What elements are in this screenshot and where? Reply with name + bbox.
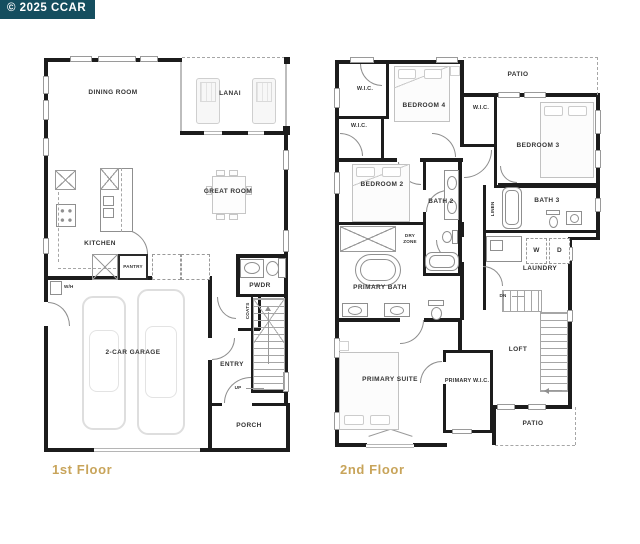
wall-segment	[44, 280, 48, 302]
wall-segment	[423, 273, 462, 276]
sink-basin	[447, 176, 457, 190]
slider-door	[248, 131, 264, 135]
pillow	[424, 69, 442, 79]
toilet-bowl	[442, 231, 452, 243]
room-label-bath2: BATH 2	[420, 198, 462, 206]
wall-segment	[222, 131, 248, 135]
wall-segment	[460, 262, 464, 320]
room-label-dining: DINING ROOM	[83, 89, 143, 97]
door-arc	[360, 64, 382, 86]
pillow	[370, 415, 390, 425]
window-marker	[43, 76, 49, 94]
wall-segment	[208, 276, 212, 338]
sink-basin	[244, 262, 260, 274]
window-marker	[497, 404, 515, 410]
room-label-garage: 2-CAR GARAGE	[92, 349, 174, 357]
wall-segment	[180, 131, 204, 135]
wall-segment	[460, 144, 497, 147]
wall-segment	[335, 443, 367, 447]
patio-dashed-line	[597, 57, 598, 95]
chair	[216, 214, 225, 220]
room-label-kitchen: KITCHEN	[69, 240, 131, 248]
room-label-pwdr: PWDR	[234, 282, 286, 290]
window-marker	[43, 100, 49, 120]
door-arc	[500, 166, 517, 183]
room-label-wh: W/H	[64, 284, 82, 290]
wall-segment	[443, 350, 446, 362]
wall-segment	[424, 318, 462, 322]
bathtub-inner	[360, 259, 396, 281]
up-arrow-icon	[265, 306, 271, 311]
stair-cross-mark	[253, 298, 285, 344]
room-label-lanai: LANAI	[205, 90, 255, 98]
window-marker	[283, 230, 289, 252]
pillow	[398, 69, 416, 79]
door-arc	[483, 266, 503, 286]
wall-segment	[413, 443, 447, 447]
room-label-bath3: BATH 3	[526, 197, 568, 205]
wall-segment	[284, 57, 290, 64]
window-marker	[98, 56, 136, 62]
room-label-bedroom3: BEDROOM 3	[502, 142, 574, 150]
copyright-badge: © 2025 CCAR	[0, 0, 95, 19]
staircase-down	[540, 312, 568, 392]
bathtub-inner	[505, 190, 519, 225]
wall-segment	[337, 222, 425, 225]
room-label-laundry: LAUNDRY	[504, 265, 576, 273]
room-label-wic2: W.I.C.	[341, 123, 377, 130]
door-arc	[340, 133, 363, 156]
label-dryer: D	[550, 247, 569, 255]
room-label-primary-wic: PRIMARY W.I.C.	[441, 378, 493, 385]
stair-direction-line	[246, 388, 264, 389]
counter-dashed-line	[58, 192, 59, 262]
toilet-tank	[452, 230, 458, 244]
room-label-primary-bath: PRIMARY BATH	[350, 284, 410, 292]
nightstand	[339, 341, 349, 351]
wall-segment	[236, 294, 288, 297]
down-arrow-icon	[544, 388, 549, 394]
floorplan-canvas: © 2025 CCAR	[0, 0, 640, 544]
door-arc	[217, 297, 236, 319]
wall-segment	[208, 403, 222, 406]
door-arc	[400, 320, 424, 344]
window-marker	[528, 404, 546, 410]
pillow	[356, 167, 375, 177]
roof-dashed-line	[182, 57, 290, 58]
toilet-tank	[428, 300, 444, 306]
island-xbox	[100, 168, 119, 190]
wall-segment	[44, 326, 48, 452]
wall-segment	[44, 448, 94, 452]
storage-xbox	[181, 254, 210, 280]
laundry-sink	[490, 240, 503, 251]
wall-segment	[492, 407, 496, 445]
wall-segment	[264, 131, 290, 135]
toilet-bowl	[549, 216, 558, 228]
room-label-primary-suite: PRIMARY SUITE	[359, 376, 421, 384]
window-marker	[43, 238, 49, 254]
sink-basin	[348, 306, 362, 315]
garage-door	[94, 448, 200, 452]
wall-segment	[498, 183, 600, 186]
wall-segment	[337, 158, 397, 162]
patio-dashed-line	[575, 407, 576, 445]
nightstand	[450, 66, 460, 76]
toilet-bowl	[266, 261, 279, 276]
sink-basin	[390, 306, 404, 315]
bathtub-inner	[429, 255, 455, 268]
slider-door	[180, 62, 182, 131]
room-label-entry: ENTRY	[206, 361, 258, 369]
sink-basin	[570, 214, 579, 223]
window-marker	[498, 92, 520, 98]
wall-segment	[443, 384, 446, 432]
stair-label-dn: DN	[496, 293, 510, 299]
toilet-tank	[546, 210, 560, 215]
room-label-patio-top: PATIO	[492, 71, 544, 79]
pillow	[544, 106, 563, 116]
pillow	[382, 167, 401, 177]
window-marker	[524, 92, 546, 98]
toilet-tank	[278, 258, 286, 278]
chair	[229, 170, 238, 176]
wall-segment	[381, 118, 384, 161]
window-marker	[140, 56, 158, 62]
door-arc	[212, 338, 235, 360]
lounge-chair-back	[256, 82, 272, 102]
room-label-linen: LINEN	[490, 193, 496, 225]
stair-label-up: UP	[231, 385, 245, 391]
door-arc	[464, 150, 492, 178]
room-label-great-room: GREAT ROOM	[202, 188, 254, 196]
window-marker	[595, 150, 601, 168]
window-marker	[595, 110, 601, 134]
door-arc	[432, 133, 456, 157]
wall-segment	[483, 230, 598, 233]
door-arc	[420, 361, 442, 383]
wall-segment	[286, 403, 290, 452]
french-door-threshold	[366, 444, 414, 448]
water-heater	[50, 281, 62, 295]
storage-xbox	[152, 254, 181, 280]
floor2-title: 2nd Floor	[340, 462, 405, 478]
wall-segment	[460, 222, 464, 237]
window-marker	[595, 198, 601, 212]
island-sink	[103, 208, 114, 218]
pillow	[568, 106, 587, 116]
wall-segment	[208, 403, 212, 452]
pillow	[344, 415, 364, 425]
room-label-porch: PORCH	[218, 422, 280, 430]
door-arc	[48, 302, 70, 326]
room-label-wic3: W.I.C.	[463, 105, 499, 112]
window-marker	[334, 88, 340, 108]
wall-segment	[337, 318, 400, 322]
room-label-wic1: W.I.C.	[347, 86, 383, 93]
wall-segment	[208, 448, 290, 452]
toilet-bowl	[431, 307, 442, 320]
counter-dashed-line	[121, 168, 122, 232]
wall-segment	[252, 403, 288, 406]
wall-segment	[420, 158, 463, 162]
wall-segment	[570, 237, 598, 240]
shower	[340, 226, 396, 252]
room-label-pantry: PANTRY	[119, 264, 147, 270]
room-label-bedroom2: BEDROOM 2	[346, 181, 418, 189]
room-label-patio-bottom: PATIO	[507, 420, 559, 428]
lanai-window-wall	[285, 64, 287, 126]
chair	[216, 170, 225, 176]
patio-dashed-line	[495, 445, 575, 446]
window-marker	[436, 57, 458, 63]
car-roof	[145, 326, 177, 398]
cabinet-xbox	[92, 254, 118, 280]
room-label-bedroom4: BEDROOM 4	[389, 102, 459, 110]
room-label-coats: COATS	[245, 296, 251, 326]
wall-segment	[423, 162, 426, 190]
room-label-loft: LOFT	[499, 346, 537, 354]
car-roof	[89, 330, 119, 392]
wall-segment	[443, 350, 493, 353]
wall-segment	[458, 318, 462, 352]
wall-segment	[460, 60, 464, 146]
slider-door	[204, 131, 222, 135]
patio-dashed-line	[463, 57, 598, 58]
window-marker	[43, 138, 49, 156]
label-washer: W	[527, 247, 546, 255]
cabinet-xbox	[55, 170, 76, 190]
label-dry-zone: DRY ZONE	[398, 233, 422, 244]
stove	[56, 204, 76, 227]
stair-direction-line	[268, 312, 269, 364]
wall-segment	[483, 185, 486, 235]
floor1-title: 1st Floor	[52, 462, 112, 478]
window-marker	[283, 150, 289, 170]
window-marker	[70, 56, 92, 62]
stair-direction-line	[512, 296, 524, 297]
window-marker	[452, 429, 472, 434]
chair	[229, 214, 238, 220]
island-sink	[103, 196, 114, 206]
stair-direction-line	[548, 390, 562, 391]
window-marker	[334, 172, 340, 194]
window-marker	[350, 57, 374, 63]
